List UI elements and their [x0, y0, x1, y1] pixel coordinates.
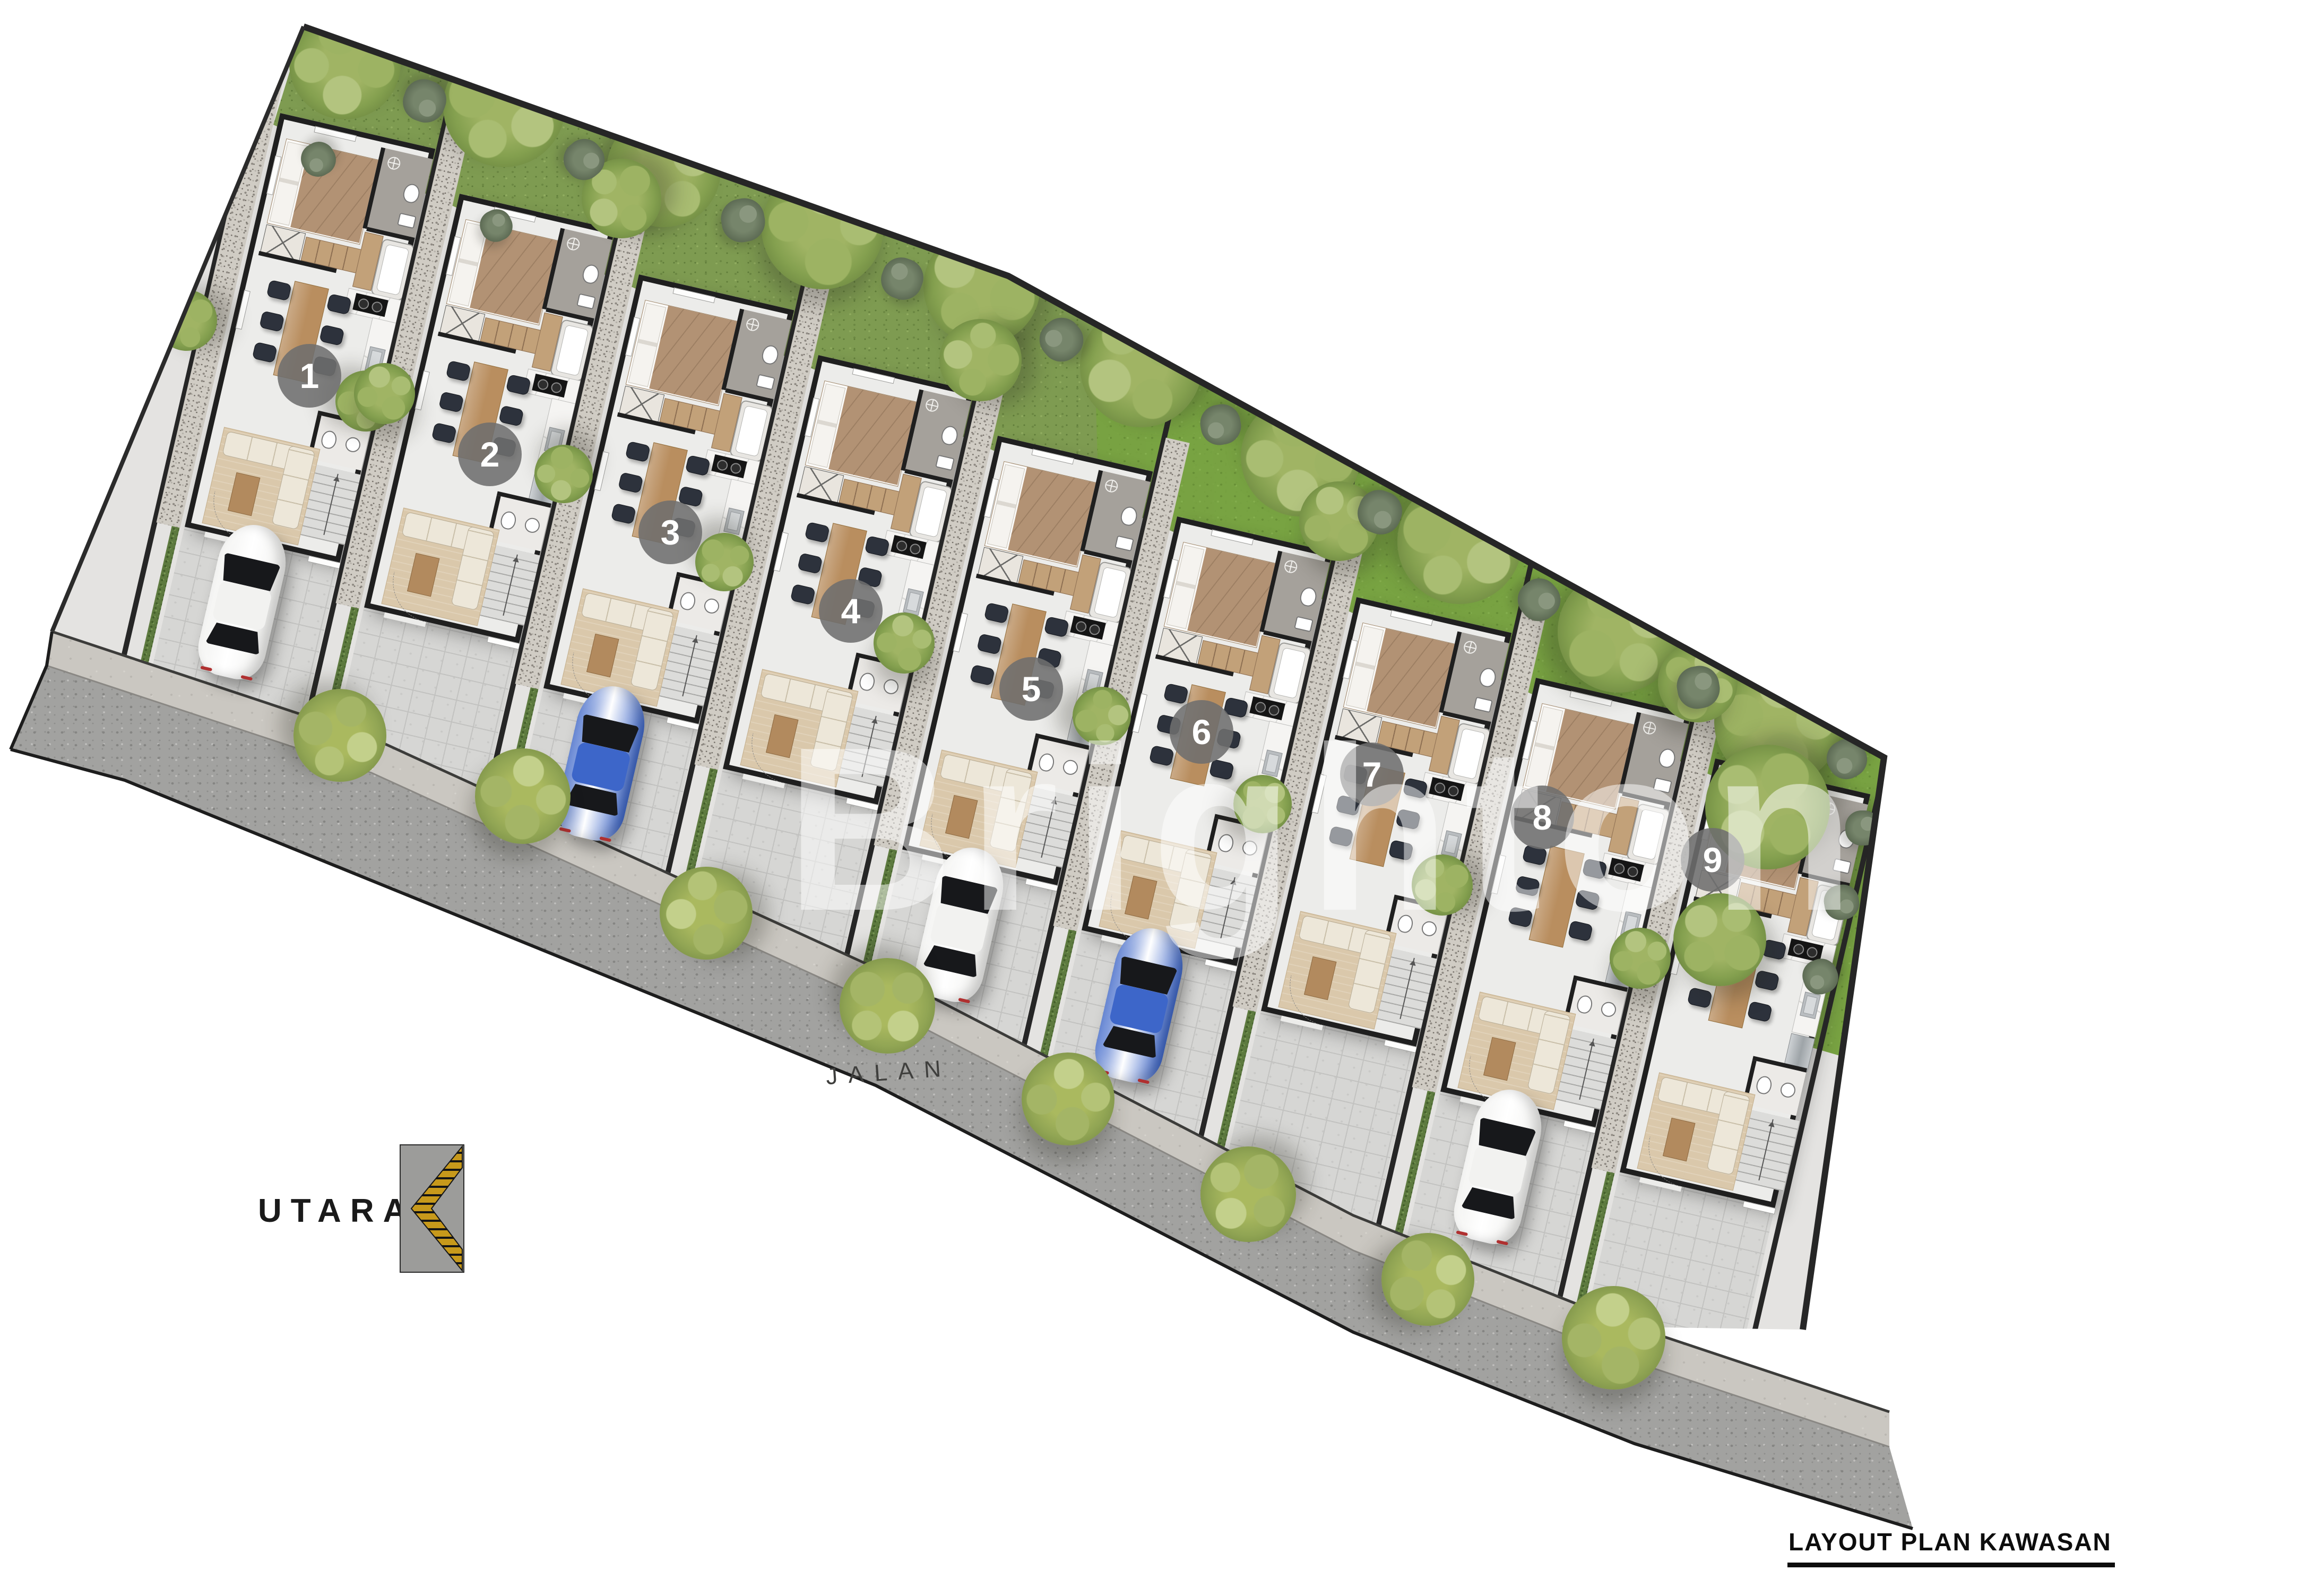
- site-plan-canvas: NAIK: [0, 0, 2324, 1596]
- unit-number-badge: 2: [458, 422, 522, 486]
- unit-number-badge: 1: [278, 344, 341, 408]
- plan-title: LAYOUT PLAN KAWASAN: [1787, 1528, 2115, 1567]
- unit-number-badge: 3: [638, 501, 702, 564]
- watermark: Brighton: [785, 695, 1869, 963]
- north-arrow-icon: [400, 1144, 464, 1273]
- north-label: UTARA: [258, 1192, 416, 1230]
- unit-number-badge: 4: [819, 579, 883, 643]
